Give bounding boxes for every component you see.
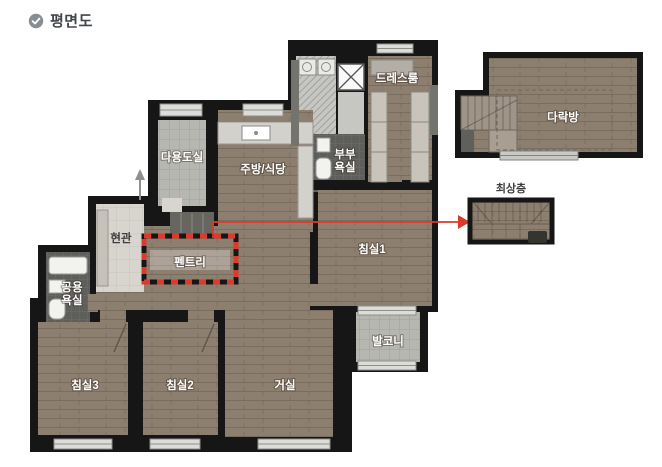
room-bedroom3-floor (38, 322, 128, 435)
window (258, 439, 330, 449)
window (150, 439, 200, 449)
door-opening (162, 198, 182, 212)
faucet-icon (254, 131, 258, 135)
room-bedroom3-label: 침실3 (71, 378, 99, 392)
room-living-label: 거실 (274, 378, 295, 392)
top-floor-label: 최상층 (496, 181, 526, 195)
room-shared-bath-label-1: 공용 (61, 281, 83, 294)
door-opening (100, 308, 126, 324)
door-opening (308, 284, 320, 306)
room-entrance-label: 현관 (110, 231, 132, 245)
room-attic-label: 다락방 (547, 110, 579, 124)
room-balcony-label: 발코니 (372, 334, 404, 348)
bathtub-icon (49, 257, 87, 274)
wardrobe (371, 92, 387, 182)
floor-plan-page: 평면도 (0, 0, 662, 467)
entry-arrowhead-icon (135, 169, 145, 180)
window (358, 306, 416, 315)
window (54, 439, 112, 449)
room-dressroom-label: 드레스룸 (376, 71, 419, 85)
room-pantry-label: 펜트리 (174, 255, 206, 269)
room-kitchen-label: 주방/식당 (240, 162, 286, 176)
room-bedroom2-label: 침실2 (166, 378, 194, 392)
attic-landing (489, 130, 517, 152)
room-master-bath-label-1: 부부 (334, 148, 356, 161)
window (160, 104, 202, 116)
wall-inset (430, 85, 438, 135)
attic-plan: 다락방 (455, 52, 643, 160)
wall-inset (291, 60, 299, 146)
room-utility-label: 다용도실 (161, 150, 203, 164)
window (243, 104, 283, 116)
door-opening (88, 294, 98, 312)
top-floor-opening (528, 231, 547, 243)
room-bedroom1-label: 침실1 (358, 242, 386, 256)
wardrobe (411, 92, 429, 182)
washer-icon (299, 59, 316, 75)
window (500, 151, 578, 160)
top-floor-callout: 최상층 (470, 181, 552, 243)
window (377, 44, 413, 53)
window (358, 361, 416, 370)
wall-segment (313, 180, 368, 190)
room-shared-bath-label-2: 욕실 (61, 293, 82, 307)
toilet-icon (316, 158, 331, 179)
door-opening (188, 308, 214, 324)
plan-canvas: 다락방 최상층 드레스룸 다용도실 주방/식당 부부 욕실 현관 펜트리 침실1… (0, 0, 662, 467)
room-master-bath-label-2: 욕실 (334, 160, 355, 174)
washer-icon (318, 59, 335, 75)
sink-icon (317, 138, 330, 152)
room-living-floor (225, 310, 333, 437)
shoe-cabinet (97, 210, 108, 286)
room-bedroom2-floor (143, 322, 218, 435)
kitchen-counter (298, 146, 313, 218)
attic-shaft (461, 130, 474, 152)
